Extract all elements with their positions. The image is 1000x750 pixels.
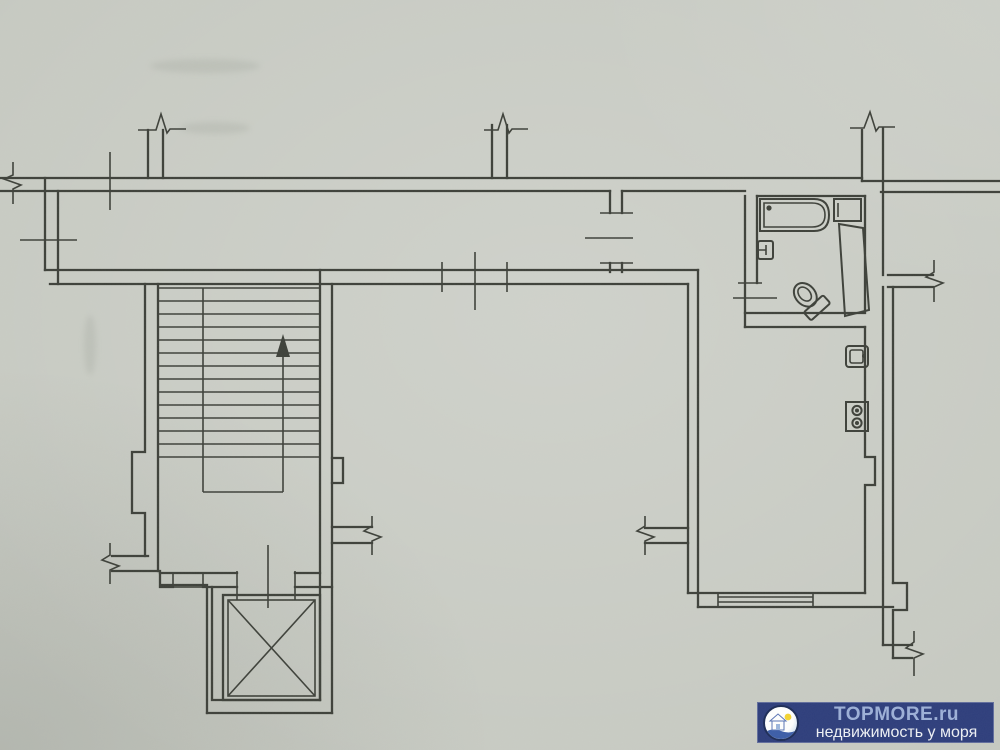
- washing-machine-icon: [834, 199, 861, 221]
- sun-shape: [785, 713, 792, 720]
- stair-direction-arrow: [276, 334, 290, 492]
- elevator: [160, 545, 332, 700]
- kitchen-window: [718, 593, 813, 607]
- bathroom-fixtures: [758, 199, 869, 321]
- scanned-floor-plan-photo: { "document": { "type": "apartment floor…: [0, 0, 1000, 750]
- watermark-tagline: недвижимость у моря: [816, 725, 978, 741]
- watermark-banner: TOPMORE.ru недвижимость у моря: [757, 702, 994, 743]
- stair-flight-divider: [203, 288, 283, 492]
- staircase: [158, 288, 320, 492]
- house-shape: [770, 714, 786, 730]
- sea-wave-shape: [767, 729, 795, 739]
- house-and-sea-logo-icon: [765, 707, 797, 739]
- watermark-text-block: TOPMORE.ru недвижимость у моря: [805, 705, 988, 741]
- elevator-x-symbol: [228, 600, 315, 696]
- opening-tick-marks: [20, 152, 777, 310]
- floor-plan-drawing: [0, 0, 1000, 750]
- watermark-logo-icon: [763, 705, 799, 741]
- wash-basin-icon: [758, 241, 773, 259]
- exterior-and-interior-walls: [0, 125, 1000, 713]
- stair-treads: [158, 288, 320, 457]
- bathtub-icon: [760, 199, 829, 231]
- watermark-brand: TOPMORE.ru: [834, 705, 959, 724]
